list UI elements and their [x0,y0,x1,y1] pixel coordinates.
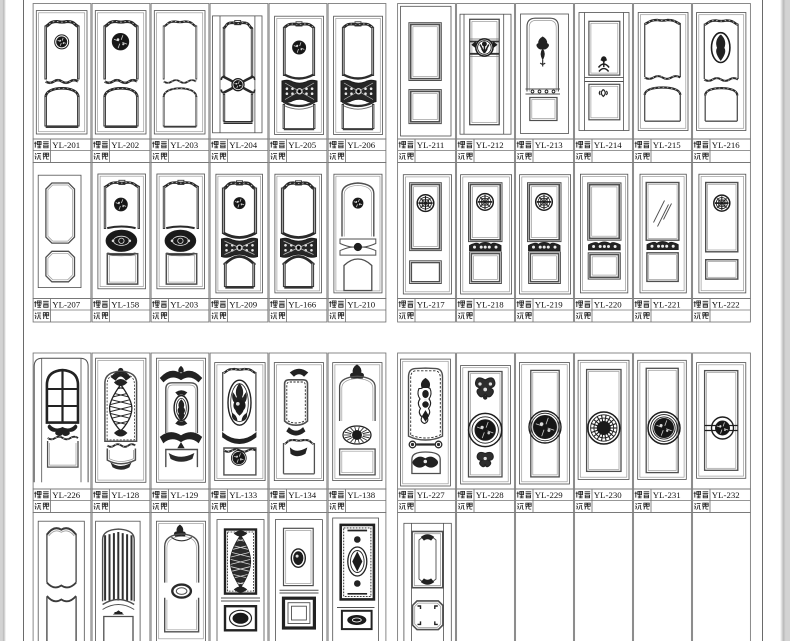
svg-text:YL-212: YL-212 [476,140,504,150]
svg-text:YL-218: YL-218 [476,299,504,309]
svg-text:YL-210: YL-210 [347,299,375,309]
svg-text:YL-232: YL-232 [712,490,740,500]
svg-text:YL-129: YL-129 [170,490,198,500]
svg-text:YL-158: YL-158 [111,299,139,309]
svg-text:YL-207: YL-207 [52,299,80,309]
svg-text:YL-229: YL-229 [535,490,563,500]
svg-text:YL-222: YL-222 [712,299,740,309]
svg-text:YL-205: YL-205 [288,140,316,150]
svg-text:YL-134: YL-134 [288,490,316,500]
svg-text:YL-206: YL-206 [347,140,375,150]
svg-text:YL-214: YL-214 [594,140,622,150]
svg-text:YL-133: YL-133 [229,490,257,500]
svg-text:YL-215: YL-215 [653,140,681,150]
svg-text:YL-228: YL-228 [476,490,504,500]
svg-text:YL-231: YL-231 [653,490,681,500]
svg-text:YL-213: YL-213 [535,140,563,150]
svg-text:YL-203: YL-203 [170,140,198,150]
svg-text:YL-230: YL-230 [594,490,622,500]
svg-text:YL-203: YL-203 [170,299,198,309]
svg-text:YL-209: YL-209 [229,299,257,309]
svg-text:YL-166: YL-166 [288,299,316,309]
svg-text:YL-216: YL-216 [712,140,740,150]
svg-text:YL-226: YL-226 [52,490,80,500]
svg-text:YL-217: YL-217 [417,299,445,309]
svg-text:YL-221: YL-221 [653,299,681,309]
svg-text:YL-128: YL-128 [111,490,139,500]
svg-text:YL-201: YL-201 [52,140,80,150]
svg-text:YL-202: YL-202 [111,140,139,150]
svg-text:YL-138: YL-138 [347,490,375,500]
svg-text:YL-211: YL-211 [417,140,445,150]
svg-text:YL-204: YL-204 [229,140,257,150]
svg-text:YL-220: YL-220 [594,299,622,309]
svg-text:YL-227: YL-227 [417,490,445,500]
svg-text:YL-219: YL-219 [535,299,563,309]
